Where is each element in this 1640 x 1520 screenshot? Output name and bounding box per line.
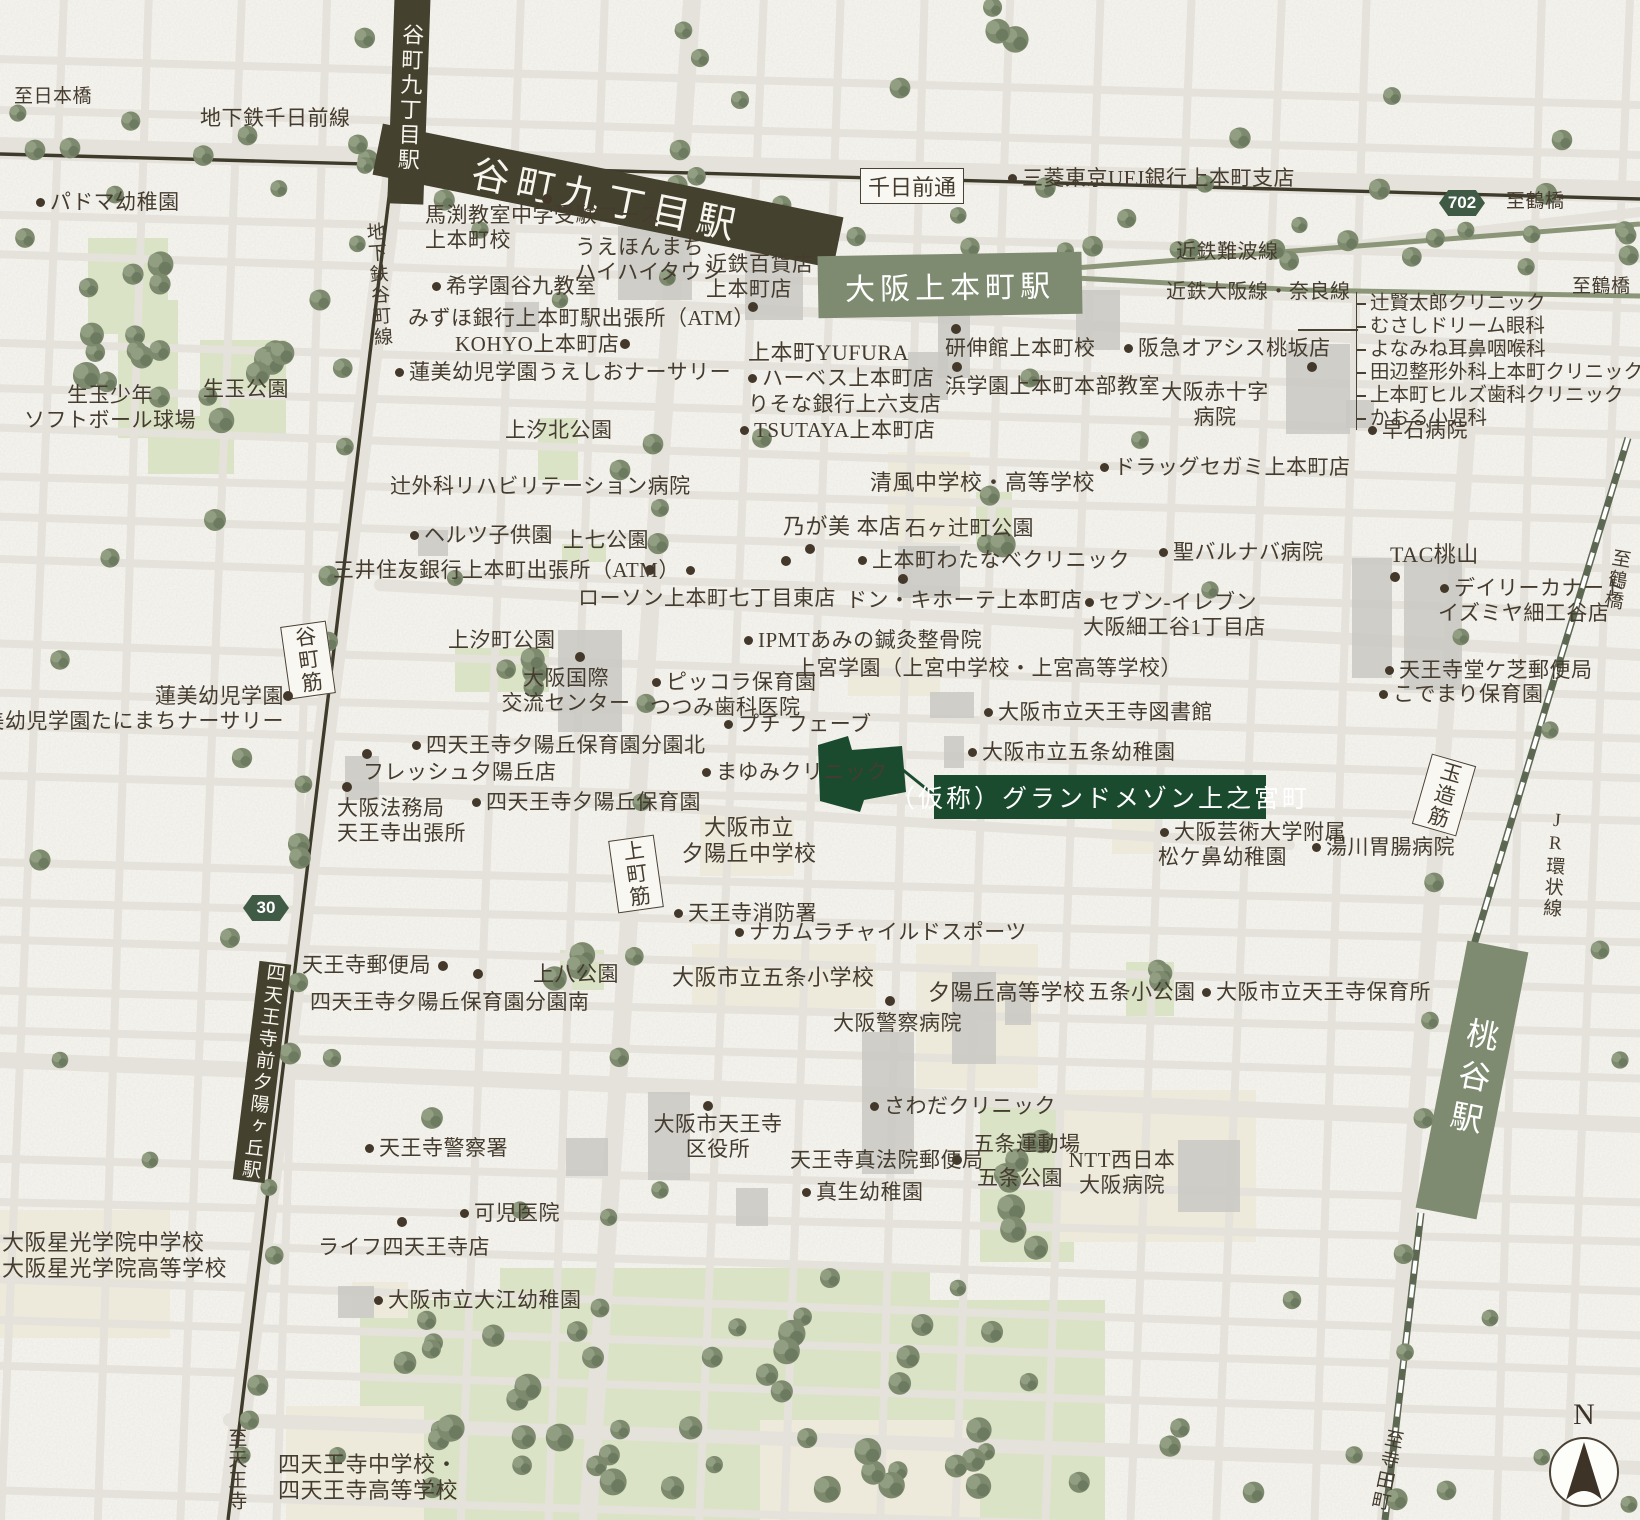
poi-dot-icon bbox=[870, 1102, 879, 1111]
map-label-五条公園: 五条公園 bbox=[977, 1166, 1063, 1191]
map-label-真生幼稚園: 真生幼稚園 bbox=[800, 1180, 924, 1205]
map-label-近鉄百貨店上本町店: 近鉄百貨店 上本町店 bbox=[706, 252, 814, 302]
map-label-蓮美幼児学園蓮美幼児学園: 蓮美幼児学園 蓮美幼児学園たにまちナーサリー bbox=[0, 684, 284, 734]
map-label-近鉄大阪線・奈良線: 近鉄大阪線・奈良線 bbox=[1166, 281, 1351, 305]
station-green-label: 大阪上本町駅 bbox=[817, 252, 1082, 319]
map-label-天王寺真法院郵便局: 天王寺真法院郵便局 bbox=[790, 1148, 984, 1173]
map-label-大阪市立五条小学校: 大阪市立五条小学校 bbox=[672, 965, 875, 991]
map-label-ドン・キホーテ上本町店: ドン・キホーテ上本町店 bbox=[846, 588, 1083, 613]
map-label-三井住友銀行上本町出張所: 三井住友銀行上本町出張所（ATM） bbox=[333, 558, 697, 583]
labels-layer: 至日本橋地下鉄千日前線千日前通三菱東京UFJ銀行上本町支店702至鶴橋近鉄難波線… bbox=[0, 0, 1640, 1520]
map-label-さわだクリニック: さわだクリニック bbox=[868, 1094, 1056, 1119]
map-label-大阪法務局天王寺出張所: 大阪法務局 天王寺出張所 bbox=[337, 796, 466, 846]
map-label-五条小公園: 五条小公園 bbox=[1088, 980, 1196, 1005]
poi-dot-icon bbox=[802, 1188, 811, 1197]
map-label-大阪赤十字病院: 大阪赤十字 病院 bbox=[1161, 380, 1269, 430]
station-dark-label: 谷町九丁目駅 bbox=[387, 0, 430, 205]
map-label-生玉少年ソフトボール球場: 生玉少年 ソフトボール球場 bbox=[24, 383, 196, 433]
poi-dot-icon bbox=[686, 566, 695, 575]
poi-dot-icon bbox=[968, 748, 977, 757]
map-label-上七公園: 上七公園 bbox=[563, 528, 649, 553]
poi-dot-icon bbox=[1312, 843, 1321, 852]
clinic-list-item: かおる小児科 bbox=[1357, 407, 1640, 430]
poi-dot-icon bbox=[473, 969, 483, 979]
map-label-デイリーカナートイズミヤ: デイリーカナート イズミヤ細工谷店 bbox=[1438, 576, 1626, 626]
poi-dot-icon bbox=[885, 996, 895, 1006]
map-label-希学園谷九教室: 希学園谷九教室 bbox=[430, 274, 597, 299]
map-label-天王寺警察署: 天王寺警察署 bbox=[363, 1136, 508, 1161]
station-dark-label: 四天王寺前夕陽ヶ丘駅 bbox=[233, 961, 292, 1183]
map-label-夕陽丘高等学校: 夕陽丘高等学校 bbox=[928, 980, 1086, 1006]
poi-dot-icon bbox=[1124, 344, 1133, 353]
poi-dot-icon bbox=[744, 636, 753, 645]
box-label: 上町筋 bbox=[608, 835, 664, 914]
map-label-天王寺郵便局: 天王寺郵便局 bbox=[302, 953, 431, 978]
map-label-上本町YUFURA: 上本町YUFURA bbox=[748, 340, 909, 366]
poi-dot-icon bbox=[898, 574, 908, 584]
map-label-ヘルツ子供園: ヘルツ子供園 bbox=[408, 523, 553, 548]
map-label-KOHYO上本町店: KOHYO上本町店 bbox=[455, 332, 619, 357]
map-label-みずほ銀行上本町駅出張所: みずほ銀行上本町駅出張所（ATM） bbox=[408, 306, 755, 331]
map-label-四天王寺夕陽丘保育園分園: 四天王寺夕陽丘保育園分園南 bbox=[310, 990, 590, 1015]
map-label-上八公園: 上八公園 bbox=[533, 962, 619, 987]
connector-line bbox=[1298, 329, 1358, 331]
map-label-四天王寺夕陽丘保育園: 四天王寺夕陽丘保育園 bbox=[470, 790, 701, 815]
badge-label: 702 bbox=[1439, 190, 1485, 216]
poi-dot-icon bbox=[36, 198, 45, 207]
poi-dot-icon bbox=[748, 374, 757, 383]
map-label-うえほんまちハイハイタウ: うえほんまち ハイハイタウン bbox=[575, 235, 723, 285]
map-label-大阪市立天王寺保育所: 大阪市立天王寺保育所 bbox=[1200, 980, 1431, 1005]
map-label-ライフ四天王寺店: ライフ四天王寺店 bbox=[318, 1235, 490, 1260]
poi-dot-icon bbox=[472, 798, 481, 807]
poi-dot-icon bbox=[735, 928, 744, 937]
poi-dot-icon bbox=[674, 909, 683, 918]
map-label-大阪警察病院: 大阪警察病院 bbox=[833, 1011, 962, 1036]
poi-dot-icon bbox=[951, 324, 961, 334]
clinic-list-item: よなみね耳鼻咽喉科 bbox=[1357, 338, 1640, 361]
compass-north-label: N bbox=[1548, 1398, 1620, 1432]
map-label-こでまり保育園: こでまり保育園 bbox=[1377, 682, 1544, 707]
map-label-研伸館上本町校: 研伸館上本町校 bbox=[945, 336, 1096, 361]
poi-dot-icon bbox=[1307, 362, 1317, 372]
poi-dot-icon bbox=[1385, 666, 1394, 675]
map-label-至鶴橋: 至鶴橋 bbox=[1599, 547, 1632, 613]
map-label-清風中学校・高等学校: 清風中学校・高等学校 bbox=[870, 470, 1095, 496]
poi-dot-icon bbox=[374, 1296, 383, 1305]
map-label-蓮美幼児学園うえしおナー: 蓮美幼児学園うえしおナーサリー bbox=[393, 360, 731, 385]
compass-rose-icon bbox=[1548, 1432, 1620, 1508]
map-label-NTT西日本大阪病院: NTT西日本 大阪病院 bbox=[1069, 1148, 1176, 1198]
poi-dot-icon bbox=[781, 556, 791, 566]
poi-dot-icon bbox=[1100, 463, 1109, 472]
poi-dot-icon bbox=[805, 544, 815, 554]
map-label-大阪市立大江幼稚園: 大阪市立大江幼稚園 bbox=[372, 1288, 582, 1313]
map-label-大阪市天王寺区役所: 大阪市天王寺 区役所 bbox=[654, 1112, 783, 1162]
map-label-ドラッグセガミ上本町店: ドラッグセガミ上本町店 bbox=[1098, 455, 1351, 480]
clinic-list-item: むさしドリーム眼科 bbox=[1357, 315, 1640, 338]
poi-dot-icon bbox=[1160, 828, 1169, 837]
poi-dot-icon bbox=[1440, 584, 1449, 593]
poi-dot-icon bbox=[1202, 988, 1211, 997]
map-label-大阪国際交流センター: 大阪国際 交流センター bbox=[502, 666, 631, 716]
poi-dot-icon bbox=[410, 531, 419, 540]
clinic-list-item: 田辺整形外科上本町クリニック bbox=[1357, 361, 1640, 384]
map-label-JR環状線: JR環状線 bbox=[1538, 809, 1568, 919]
poi-dot-icon bbox=[1390, 572, 1400, 582]
poi-dot-icon bbox=[1008, 174, 1017, 183]
map-label-天王寺堂ケ芝郵便局: 天王寺堂ケ芝郵便局 bbox=[1383, 658, 1593, 683]
map-label-石ヶ辻町公園: 石ヶ辻町公園 bbox=[905, 516, 1034, 541]
map-label-まゆみクリニック: まゆみクリニック bbox=[700, 760, 888, 785]
map-label-パドマ幼稚園: パドマ幼稚園 bbox=[34, 190, 180, 215]
map-label-生玉公園: 生玉公園 bbox=[203, 377, 289, 402]
clinic-list: 辻賢太郎クリニックむさしドリーム眼科よなみね耳鼻咽喉科田辺整形外科上本町クリニッ… bbox=[1356, 292, 1640, 430]
poi-dot-icon bbox=[724, 720, 733, 729]
poi-dot-icon bbox=[362, 749, 372, 759]
poi-dot-icon bbox=[984, 708, 993, 717]
poi-dot-icon bbox=[342, 782, 352, 792]
map-label-大阪星光学院中学校大阪星: 大阪星光学院中学校 大阪星光学院高等学校 bbox=[2, 1230, 227, 1282]
poi-dot-icon bbox=[395, 368, 404, 377]
map-label-至鶴橋: 至鶴橋 bbox=[1506, 191, 1565, 213]
map-label-至寺田町: 至寺田町 bbox=[1366, 1427, 1405, 1514]
map-label-ローソン上本町七丁目東店: ローソン上本町七丁目東店 bbox=[578, 586, 836, 611]
poi-dot-icon bbox=[412, 741, 421, 750]
map-label-プチフェーブ: プチ フェーブ bbox=[722, 712, 872, 737]
box-label: 谷町筋 bbox=[280, 621, 336, 700]
badge-label: 30 bbox=[243, 895, 289, 921]
poi-dot-icon bbox=[283, 691, 293, 701]
map-label-四天王寺夕陽丘保育園分園: 四天王寺夕陽丘保育園分園北 bbox=[410, 733, 706, 758]
poi-dot-icon bbox=[397, 1217, 407, 1227]
poi-dot-icon bbox=[620, 339, 630, 349]
map-label-上本町わたなべクリニック: 上本町わたなべクリニック bbox=[856, 548, 1130, 573]
poi-dot-icon bbox=[740, 426, 749, 435]
map-label-阪急オアシス桃坂店: 阪急オアシス桃坂店 bbox=[1122, 336, 1331, 361]
map-label-至天王寺: 至天王寺 bbox=[224, 1428, 246, 1512]
map-label-辻外科リハビリテーション: 辻外科リハビリテーション病院 bbox=[390, 474, 691, 499]
map-label-近鉄難波線: 近鉄難波線 bbox=[1176, 241, 1279, 265]
poi-dot-icon bbox=[460, 1209, 469, 1218]
map-label-りそな銀行上六支店: りそな銀行上六支店 bbox=[748, 392, 942, 417]
map-label-TAC桃山: TAC桃山 bbox=[1390, 542, 1479, 568]
poi-dot-icon bbox=[952, 362, 962, 372]
map-label-大阪市立天王寺図書館: 大阪市立天王寺図書館 bbox=[982, 700, 1213, 725]
poi-dot-icon bbox=[702, 768, 711, 777]
map-label-聖バルナバ病院: 聖バルナバ病院 bbox=[1157, 540, 1324, 565]
box-label: 千日前通 bbox=[860, 168, 964, 204]
clinic-list-item: 上本町ヒルズ歯科クリニック bbox=[1357, 384, 1640, 407]
map-label-ハーベス上本町店: ハーベス上本町店 bbox=[746, 366, 934, 391]
map-label-五条運動場: 五条運動場 bbox=[973, 1132, 1081, 1157]
map-label-上汐町公園: 上汐町公園 bbox=[448, 628, 556, 653]
clinic-list-item: 辻賢太郎クリニック bbox=[1357, 292, 1640, 315]
map-label-湯川胃腸病院: 湯川胃腸病院 bbox=[1310, 835, 1455, 860]
poi-dot-icon bbox=[575, 652, 585, 662]
map-label-地下鉄谷町線: 地下鉄谷町線 bbox=[362, 221, 393, 348]
compass: N bbox=[1548, 1398, 1620, 1513]
poi-dot-icon bbox=[703, 1101, 713, 1111]
poi-dot-icon bbox=[858, 556, 867, 565]
map-label-可児医院: 可児医院 bbox=[458, 1201, 560, 1226]
poi-dot-icon bbox=[365, 1144, 374, 1153]
station-green-label: 桃谷駅 bbox=[1416, 941, 1529, 1220]
poi-dot-icon bbox=[1159, 548, 1168, 557]
map-label-浜学園上本町本部教室: 浜学園上本町本部教室 bbox=[945, 374, 1160, 399]
property-name-plate: （仮称）グランドメゾン上之宮町 bbox=[934, 775, 1266, 819]
map-label-地下鉄千日前線: 地下鉄千日前線 bbox=[200, 106, 351, 131]
map-label-四天王寺中学校・四天王寺: 四天王寺中学校・ 四天王寺高等学校 bbox=[278, 1452, 458, 1504]
map-label-上汐北公園: 上汐北公園 bbox=[505, 418, 613, 443]
map-label-大阪市立夕陽丘中学校: 大阪市立 夕陽丘中学校 bbox=[681, 815, 816, 867]
map-label-乃が美本店: 乃が美 本店 bbox=[783, 514, 902, 540]
poi-dot-icon bbox=[438, 961, 448, 971]
box-label: 玉造筋 bbox=[1412, 754, 1476, 837]
map-label-ナカムラチャイルドスポー: ナカムラチャイルドスポーツ bbox=[733, 920, 1027, 945]
map-label-TSUTAYA上本町店: TSUTAYA上本町店 bbox=[738, 418, 936, 443]
poi-dot-icon bbox=[1085, 598, 1094, 607]
poi-dot-icon bbox=[432, 282, 441, 291]
map-label-至日本橋: 至日本橋 bbox=[14, 86, 92, 108]
map-label-大阪市立五条幼稚園: 大阪市立五条幼稚園 bbox=[966, 740, 1176, 765]
poi-dot-icon bbox=[652, 678, 661, 687]
map-label-フレッシュ夕陽丘店: フレッシュ夕陽丘店 bbox=[363, 760, 557, 785]
map-label-上宮学園（上宮中学校・上: 上宮学園（上宮中学校・上宮高等学校） bbox=[795, 656, 1182, 681]
area-map: 至日本橋地下鉄千日前線千日前通三菱東京UFJ銀行上本町支店702至鶴橋近鉄難波線… bbox=[0, 0, 1640, 1520]
map-label-IPMTあみの鍼灸整骨院: IPMTあみの鍼灸整骨院 bbox=[742, 628, 982, 653]
poi-dot-icon bbox=[1379, 690, 1388, 699]
map-label-三菱東京UFJ銀行上本町: 三菱東京UFJ銀行上本町支店 bbox=[1006, 166, 1295, 191]
map-label-セブン-イレブン大阪細工: セブン-イレブン 大阪細工谷1丁目店 bbox=[1083, 590, 1266, 640]
